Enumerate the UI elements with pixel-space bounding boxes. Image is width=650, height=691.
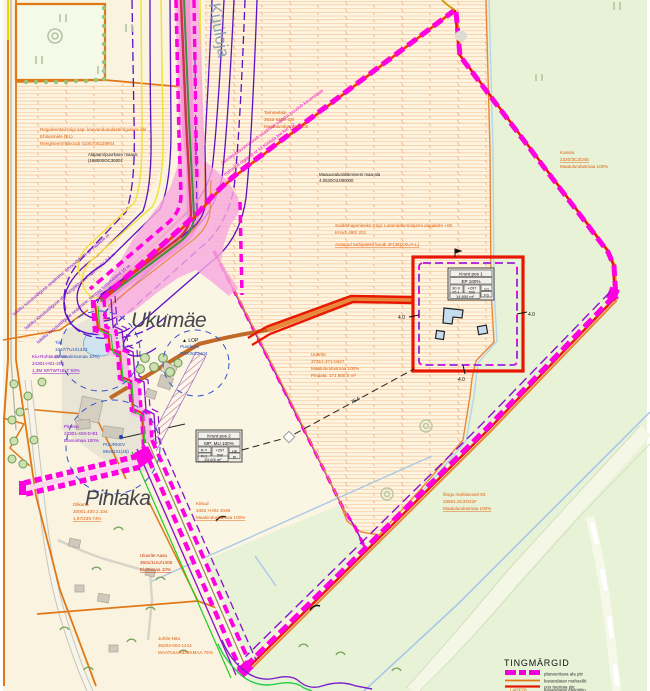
svg-text:Juhtle-Nita: Juhtle-Nita: [158, 636, 180, 641]
svg-text:Maakindushamaa 100%: Maakindushamaa 100%: [196, 515, 245, 520]
svg-text:1/1: 1/1: [484, 288, 489, 292]
svg-text:TINGMÄRGID: TINGMÄRGID: [504, 658, 570, 668]
svg-text:Krunt pos 2: Krunt pos 2: [207, 434, 231, 439]
svg-text:Uuerite: Uuerite: [311, 352, 326, 357]
svg-text:L4/2F20: L4/2F20: [510, 688, 527, 691]
svg-text:Soiderhajamiseks Krigi: Lasend: Soiderhajamiseks Krigi: Lasendasendajemi…: [335, 223, 453, 228]
svg-text:(Mustvalmamaa 10%): (Mustvalmamaa 10%): [55, 354, 100, 359]
svg-text:Pö: Pö: [484, 294, 489, 298]
svg-text:+297: +297: [216, 449, 225, 453]
svg-text:4.0: 4.0: [528, 312, 535, 318]
svg-text:Tiig: Tiig: [55, 340, 63, 345]
svg-text:(198000OC30001: (198000OC30001: [88, 158, 123, 163]
svg-text:4.0530O240E000: 4.0530O240E000: [319, 178, 354, 183]
svg-text:Ehitusmele (EL): Ehitusmele (EL): [40, 134, 73, 139]
svg-text:89x8121(45): 89x8121(45): [103, 449, 129, 454]
svg-text:kavandatav mahasõit: kavandatav mahasõit: [544, 679, 587, 684]
svg-text:lõngu mahlavooel 93: lõngu mahlavooel 93: [443, 492, 486, 497]
svg-text:MAATULUNDUSMAA 75%: MAATULUNDUSMAA 75%: [158, 650, 213, 655]
svg-text:3483 I-H04 4049: 3483 I-H04 4049: [196, 508, 231, 513]
svg-text:24301-H01-204: 24301-H01-204: [32, 361, 64, 366]
svg-text:Krind: 490/ 201: Krind: 490/ 201: [335, 230, 367, 235]
svg-text:kavandatav elektriliin: kavandatav elektriliin: [544, 688, 586, 691]
svg-text:MP: MU 100%: MP: MU 100%: [204, 441, 234, 446]
svg-text:63.0/5 m²: 63.0/5 m²: [205, 457, 223, 462]
svg-text:20001.400.2.104: 20001.400.2.104: [73, 509, 108, 514]
svg-text:4.0: 4.0: [398, 315, 405, 321]
svg-text:Maatulundusmaa 100%: Maatulundusmaa 100%: [560, 164, 608, 169]
svg-text:2320/3C3/245: 2320/3C3/245: [560, 157, 589, 162]
svg-text:23301-403-D-B1: 23301-403-D-B1: [64, 431, 98, 436]
svg-text:PRK0022404: PRK0022404: [180, 351, 208, 356]
svg-text:R-Y: R-Y: [201, 449, 208, 453]
svg-text:14 800 m²: 14 800 m²: [456, 294, 475, 299]
svg-text:4.0: 4.0: [458, 377, 465, 383]
svg-text:Kansia: Kansia: [560, 150, 574, 155]
svg-text:Pindala: 171 800.0 m²: Pindala: 171 800.0 m²: [311, 373, 356, 378]
svg-text:Pihlaka: Pihlaka: [85, 487, 150, 510]
svg-text:1047/TUU/1323: 1047/TUU/1323: [55, 347, 88, 352]
svg-text:PiHexa: PiHexa: [64, 424, 79, 429]
svg-text:Reegiseerimiskoodi 41067002299: Reegiseerimiskoodi 4106700229904: [40, 141, 115, 146]
svg-text:1,3M SRTWTUILT 93%: 1,3M SRTWTUILT 93%: [32, 368, 80, 373]
svg-text:PUURKEV: PUURKEV: [103, 442, 126, 447]
svg-text:33601.3C3O31F: 33601.3C3O31F: [443, 499, 477, 504]
svg-text:Uluvrite Aasu: Uluvrite Aasu: [140, 553, 168, 558]
svg-text:Elamumaa 100%: Elamumaa 100%: [64, 438, 99, 443]
svg-text:▲ LOP: ▲ LOP: [182, 338, 199, 344]
svg-text:Maatulundusmaa 100%: Maatulundusmaa 100%: [311, 366, 359, 371]
svg-text:Ukumäe: Ukumäe: [131, 309, 206, 332]
svg-text:Reguleeritav roigi sap: kaevan: Reguleeritav roigi sap: kaevandusalaste …: [40, 127, 147, 132]
svg-text:UK: UK: [232, 450, 238, 454]
svg-text:Kiisud: Kiisud: [196, 501, 209, 506]
svg-text:1,87/239.74%: 1,87/239.74%: [73, 516, 101, 521]
svg-text:planeeritava ala piir: planeeritava ala piir: [544, 672, 584, 677]
svg-text:Puurkaev: Puurkaev: [180, 344, 200, 349]
svg-text:Elamimaa 10%: Elamimaa 10%: [140, 567, 171, 572]
svg-text:Alajaam/puurkaev maauk: Alajaam/puurkaev maauk: [88, 152, 138, 157]
svg-text:PI: PI: [233, 456, 237, 460]
svg-text:36204-004-1414: 36204-004-1414: [158, 643, 192, 648]
svg-text:EP 100%: EP 100%: [461, 279, 480, 284]
svg-text:Aiatatud tarbijateks koodi 4F(: Aiatatud tarbijateks koodi 4F(38)XXUA-L): [335, 242, 420, 247]
svg-text:3601/1UU/1406: 3601/1UU/1406: [140, 560, 173, 565]
svg-text:Maauusaluslaskmiseni maa-ala: Maauusaluslaskmiseni maa-ala: [319, 172, 381, 177]
svg-text:Maatulundusmaa 100%: Maatulundusmaa 100%: [443, 506, 491, 511]
svg-text:Dlikarta: Dlikarta: [73, 502, 89, 507]
svg-text:37211-371-0427: 37211-371-0427: [311, 359, 345, 364]
svg-text:Krunt pos 1: Krunt pos 1: [459, 272, 483, 277]
